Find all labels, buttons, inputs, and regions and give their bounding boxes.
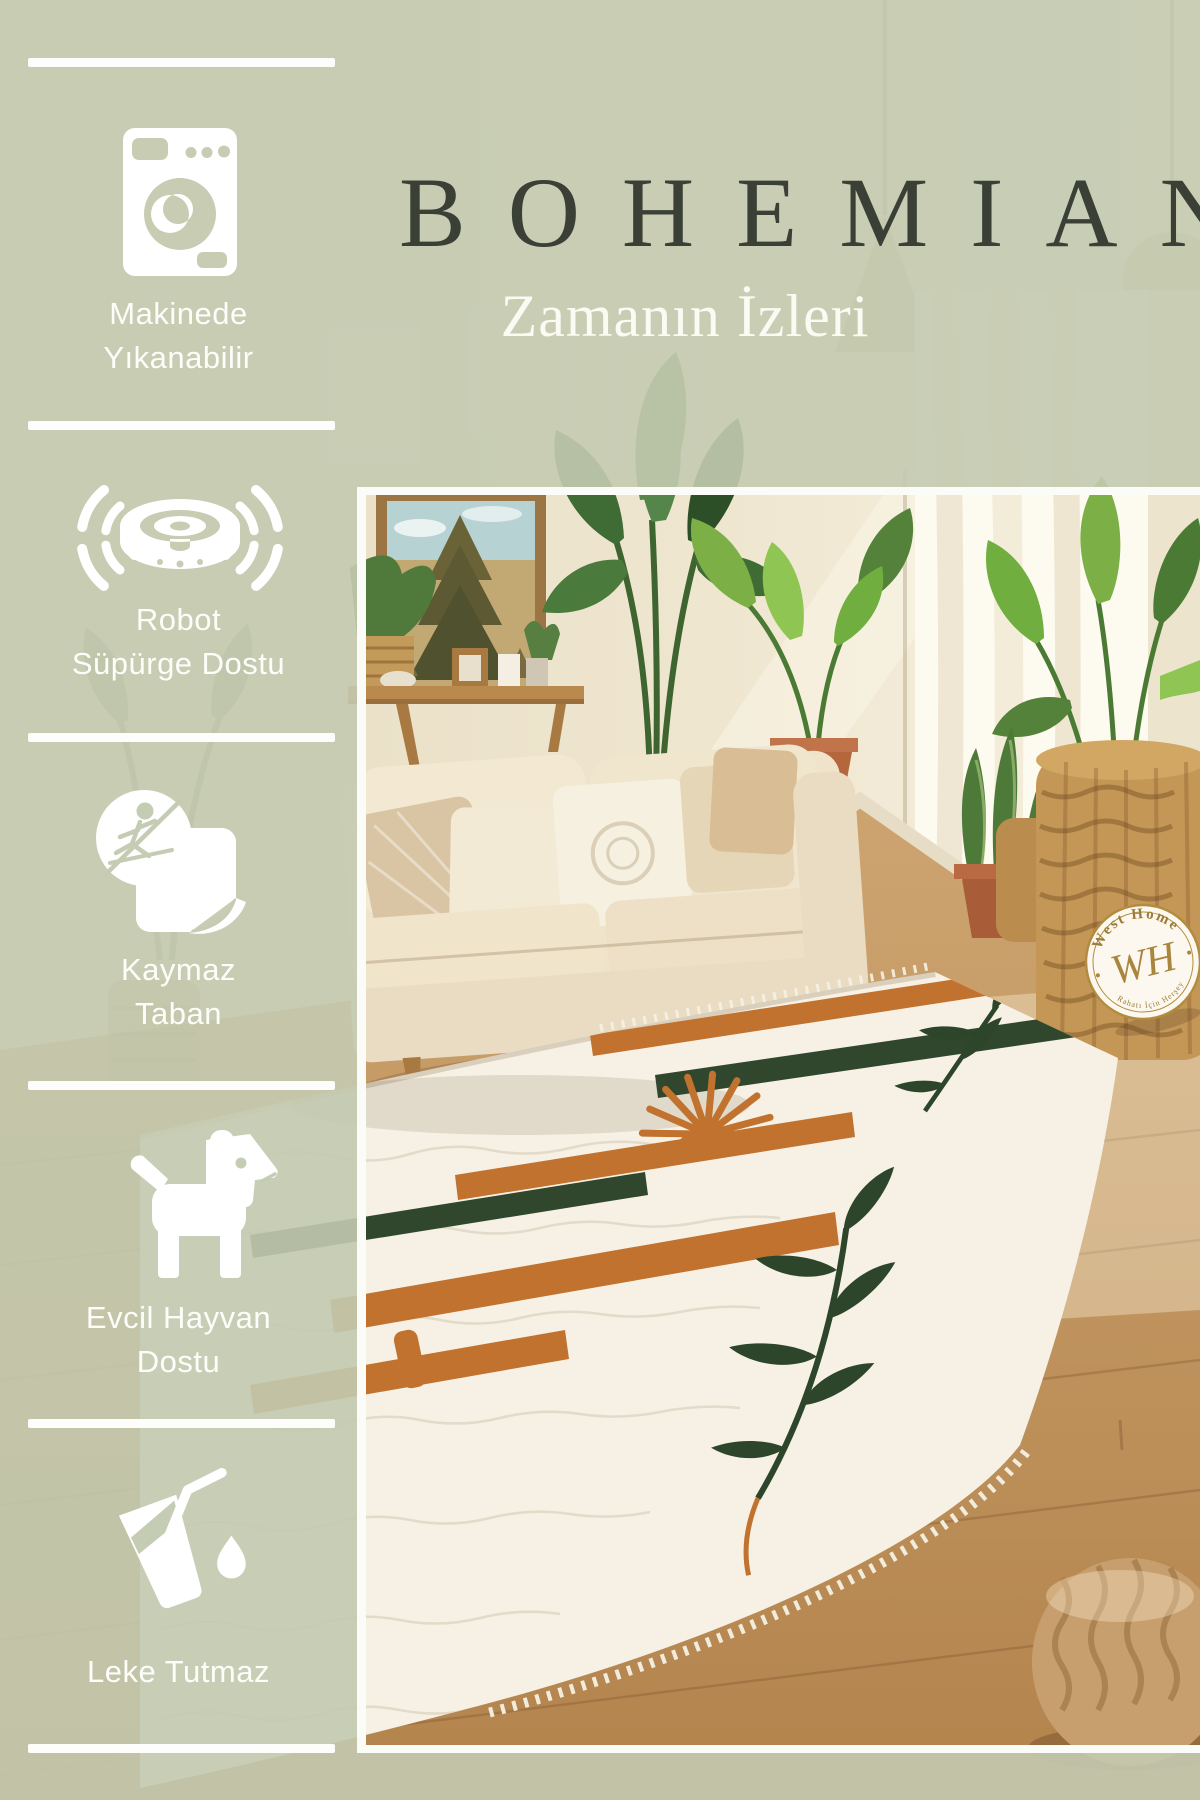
- feature-label-machine-washable: Makinede Yıkanabilir: [0, 292, 357, 380]
- divider: [28, 1081, 335, 1090]
- divider: [28, 421, 335, 430]
- divider: [28, 733, 335, 742]
- page-title: BOHEMIAN: [357, 160, 1200, 265]
- product-card: West Home WH Rahatı İçin Herşey BOHEMIAN…: [0, 0, 1200, 1800]
- overlay-bottom: [357, 1753, 1200, 1800]
- washing-machine-icon: [121, 126, 239, 278]
- feature-label-pet-friendly: Evcil Hayvan Dostu: [0, 1296, 357, 1384]
- divider: [28, 1419, 335, 1428]
- subtitle: Zamanın İzleri: [357, 282, 1013, 351]
- spill-glass-icon: [100, 1452, 260, 1642]
- divider: [28, 1744, 335, 1753]
- non-slip-rug-icon: [92, 786, 262, 938]
- dog-icon: [94, 1128, 280, 1286]
- feature-label-robot-vacuum: Robot Süpürge Dostu: [0, 598, 357, 686]
- divider: [28, 58, 335, 67]
- feature-label-non-slip: Kaymaz Taban: [0, 948, 357, 1036]
- knit-pouf: [1028, 1558, 1200, 1770]
- feature-label-stain-resistant: Leke Tutmaz: [0, 1650, 357, 1694]
- robot-vacuum-icon: [58, 476, 302, 600]
